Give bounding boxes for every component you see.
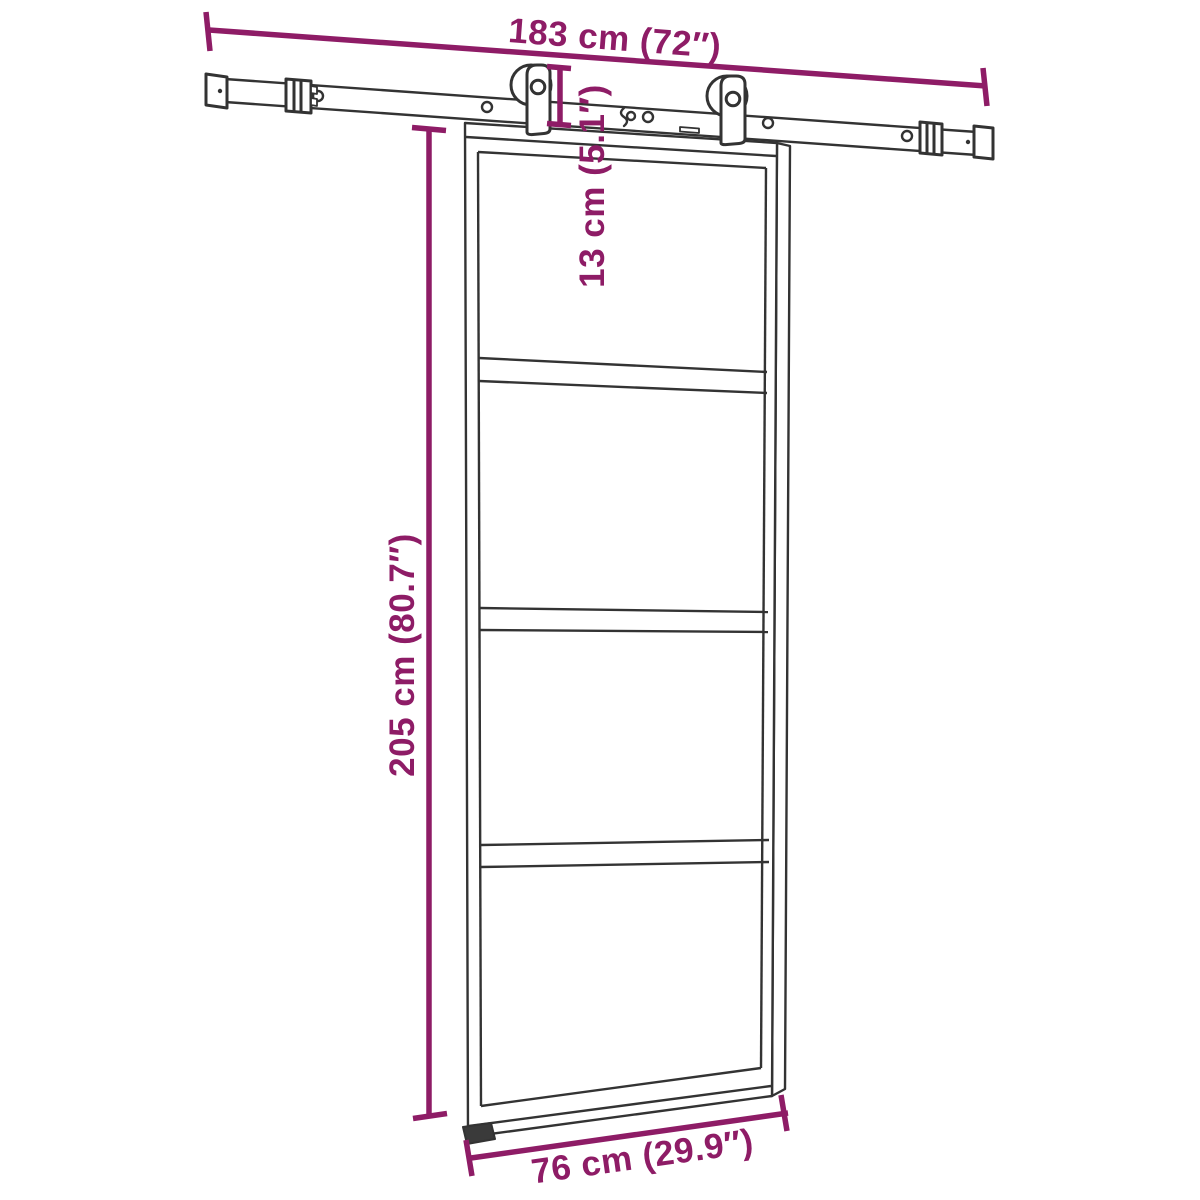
rail-hole xyxy=(482,102,492,112)
door-height-label: 205 cm (80.7″) xyxy=(383,533,422,777)
wall-bracket-left xyxy=(286,79,317,113)
end-cap-screw xyxy=(966,140,970,144)
dimension-tick xyxy=(412,128,446,131)
rail-hole xyxy=(763,118,773,128)
wall-bracket-right xyxy=(920,122,942,155)
rail-joint-pin xyxy=(627,112,635,120)
rail-hole xyxy=(902,131,912,141)
rail-clip xyxy=(680,127,699,133)
hanger-strap-left xyxy=(527,65,550,135)
dimension-tick xyxy=(547,67,571,69)
rail-hole xyxy=(643,112,653,122)
hanger-bolt-right xyxy=(726,92,740,106)
hanger-drop-label: 13 cm (5.1″) xyxy=(573,84,612,288)
door-panel xyxy=(463,123,790,1144)
hanger-strap-right xyxy=(721,76,745,145)
hanger-bolt-left xyxy=(531,80,545,94)
rail-end-cap-left xyxy=(206,74,227,108)
end-cap-screw xyxy=(218,89,222,93)
dimension-diagram: 183 cm (72″) 13 cm (5.1″) 205 cm (80.7″)… xyxy=(0,0,1200,1200)
dimension-tick xyxy=(547,124,571,126)
